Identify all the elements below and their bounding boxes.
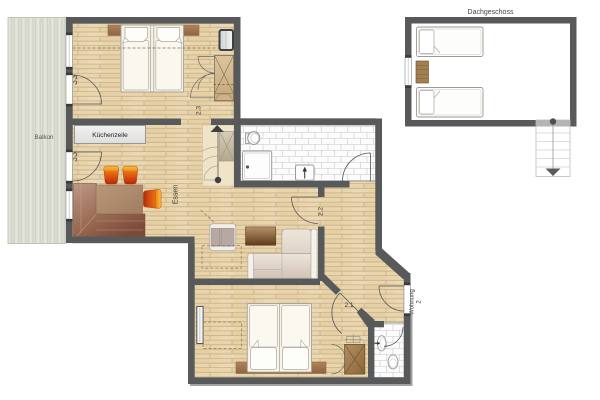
svg-text:Balkon: Balkon xyxy=(35,134,54,141)
svg-text:2.2: 2.2 xyxy=(318,207,325,216)
svg-text:Küchenzeile: Küchenzeile xyxy=(92,132,128,139)
svg-text:Wohnung: Wohnung xyxy=(410,289,416,315)
svg-text:Dachgeschoss: Dachgeschoss xyxy=(468,9,514,16)
svg-text:Essen: Essen xyxy=(173,185,180,205)
svg-text:2.3: 2.3 xyxy=(196,106,203,115)
